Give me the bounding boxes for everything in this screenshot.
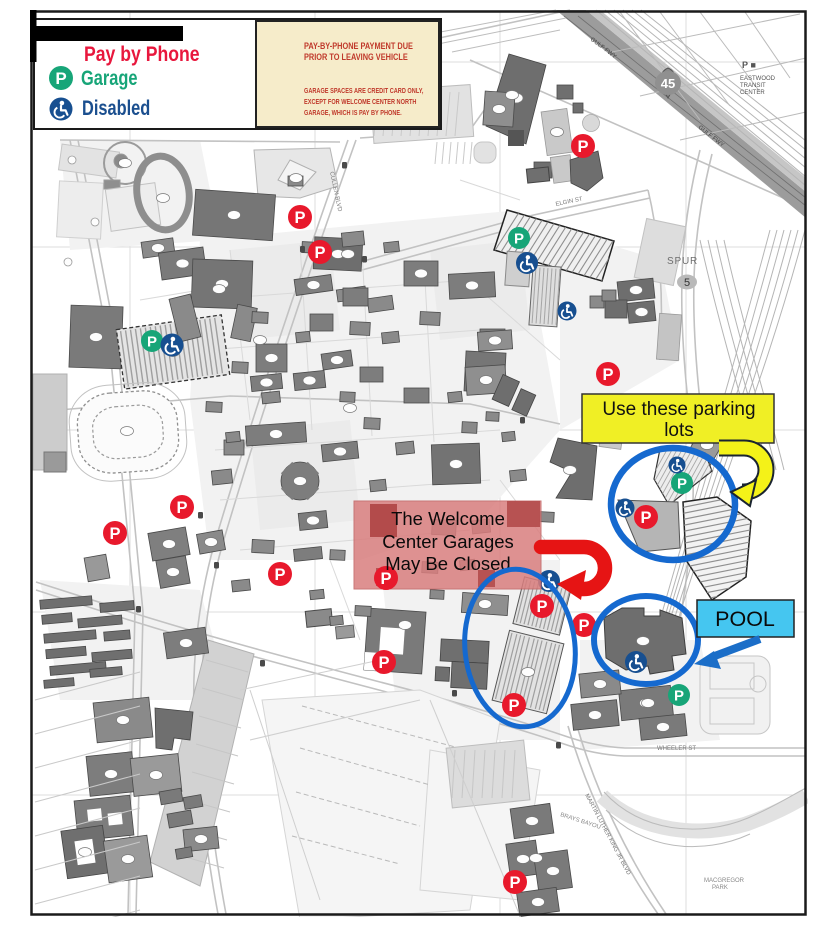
svg-text:WHEELER ST: WHEELER ST xyxy=(657,746,696,752)
svg-text:Garage: Garage xyxy=(81,66,137,89)
svg-text:SPUR: SPUR xyxy=(667,256,698,267)
svg-text:Disabled: Disabled xyxy=(82,96,150,119)
svg-text:lots: lots xyxy=(664,420,694,441)
svg-text:May Be Closed: May Be Closed xyxy=(385,553,510,574)
svg-text:P: P xyxy=(314,244,325,262)
svg-text:P: P xyxy=(378,654,389,672)
svg-text:P: P xyxy=(577,138,588,156)
svg-text:P: P xyxy=(602,366,613,384)
svg-text:P: P xyxy=(55,69,66,88)
svg-text:EXCEPT FOR WELCOME CENTER NORT: EXCEPT FOR WELCOME CENTER NORTH xyxy=(304,98,417,106)
svg-text:5: 5 xyxy=(684,277,690,289)
svg-text:POOL: POOL xyxy=(715,607,775,631)
svg-text:P: P xyxy=(109,525,120,543)
svg-text:P: P xyxy=(640,509,651,527)
svg-text:P: P xyxy=(536,598,547,616)
svg-text:P ■: P ■ xyxy=(742,60,756,70)
svg-text:P: P xyxy=(508,697,519,715)
svg-text:P: P xyxy=(578,617,589,635)
svg-text:P: P xyxy=(294,209,305,227)
svg-text:GARAGE, WHICH IS PAY BY PHONE.: GARAGE, WHICH IS PAY BY PHONE. xyxy=(304,109,402,117)
svg-text:PAY-BY-PHONE PAYMENT DUE: PAY-BY-PHONE PAYMENT DUE xyxy=(304,41,413,51)
svg-text:P: P xyxy=(274,566,285,584)
svg-text:P: P xyxy=(176,499,187,517)
svg-text:P: P xyxy=(674,687,684,704)
svg-text:Pay by Phone: Pay by Phone xyxy=(84,43,200,67)
svg-text:PRIOR TO LEAVING VEHICLE: PRIOR TO LEAVING VEHICLE xyxy=(304,52,408,62)
svg-text:GARAGE SPACES ARE CREDIT CARD: GARAGE SPACES ARE CREDIT CARD ONLY, xyxy=(304,87,424,95)
svg-text:P: P xyxy=(509,874,520,892)
svg-text:P: P xyxy=(147,333,157,350)
svg-text:Center Garages: Center Garages xyxy=(382,531,514,552)
svg-text:45: 45 xyxy=(661,76,675,91)
svg-text:P: P xyxy=(514,230,524,247)
svg-text:P: P xyxy=(677,475,687,492)
svg-text:The Welcome: The Welcome xyxy=(391,508,505,529)
svg-text:Use these parking: Use these parking xyxy=(602,399,755,420)
